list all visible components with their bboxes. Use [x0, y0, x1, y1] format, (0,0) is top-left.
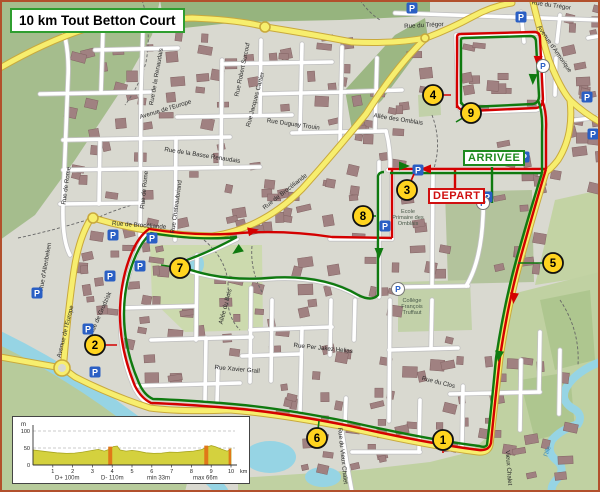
- x-tick-label: 8: [190, 469, 193, 475]
- landuse-area: [150, 245, 263, 332]
- building: [379, 455, 387, 462]
- waypoint-number: 9: [468, 108, 474, 120]
- building: [201, 34, 208, 43]
- roundabout: [88, 213, 98, 223]
- building: [392, 263, 399, 273]
- parking-letter: P: [395, 284, 401, 294]
- building: [200, 117, 214, 130]
- building: [296, 204, 311, 213]
- poi-label: Truffaut: [403, 310, 422, 316]
- building: [145, 373, 159, 384]
- road: [221, 60, 222, 167]
- steep-section: [229, 449, 231, 465]
- building: [436, 422, 443, 429]
- building: [321, 393, 329, 402]
- road: [121, 306, 196, 308]
- elevation-stat: D+ 100m: [55, 476, 80, 482]
- road: [60, 203, 140, 204]
- steep-section: [108, 447, 112, 465]
- x-tick-label: 5: [130, 469, 133, 475]
- building: [473, 43, 486, 49]
- building: [90, 231, 104, 242]
- building: [485, 356, 493, 367]
- road: [196, 255, 197, 340]
- finish-label: ARRIVEE: [463, 150, 525, 166]
- road: [222, 62, 332, 64]
- building: [327, 264, 340, 276]
- building: [388, 107, 397, 114]
- building: [298, 284, 313, 295]
- building: [81, 251, 93, 261]
- street-label: Allée des Omblais: [373, 112, 423, 127]
- building: [410, 246, 425, 253]
- building: [234, 314, 241, 321]
- road: [217, 368, 218, 402]
- parking-letter: P: [85, 325, 91, 335]
- road: [300, 44, 302, 131]
- parking-letter: P: [107, 272, 113, 282]
- building: [328, 83, 337, 91]
- building: [419, 67, 433, 79]
- road: [539, 332, 540, 392]
- building: [166, 51, 179, 62]
- x-tick-label: 4: [111, 469, 114, 475]
- building: [255, 309, 264, 315]
- road: [141, 28, 143, 91]
- building: [144, 355, 155, 363]
- parking-letter: P: [584, 93, 590, 103]
- roundabout-island: [58, 364, 66, 372]
- pond: [244, 441, 296, 473]
- building: [595, 151, 600, 162]
- x-tick-label: 6: [150, 469, 153, 475]
- parking-letter: P: [382, 222, 388, 232]
- parking-letter: P: [149, 234, 155, 244]
- building: [171, 76, 186, 86]
- parking-letter: P: [590, 130, 596, 140]
- waypoint-number: 1: [440, 435, 447, 447]
- building: [198, 45, 213, 55]
- parking-letter: P: [137, 262, 143, 272]
- street-label: Rue Duguay Trouin: [266, 117, 320, 131]
- roundabout: [421, 34, 429, 42]
- main-road: [546, 100, 571, 172]
- building: [569, 23, 576, 32]
- building: [554, 472, 566, 481]
- building: [298, 307, 310, 318]
- street-label: Rue du Trégor: [404, 21, 444, 30]
- building: [264, 179, 275, 189]
- parking-letter: P: [409, 4, 415, 14]
- building: [592, 5, 600, 14]
- building: [355, 134, 363, 141]
- x-tick-label: 7: [170, 469, 173, 475]
- building: [115, 118, 126, 129]
- road: [292, 131, 386, 133]
- street-label: Rue d'Altenbeken: [38, 242, 53, 292]
- building: [572, 146, 587, 157]
- road: [588, 36, 600, 38]
- road: [260, 92, 346, 94]
- building: [155, 246, 163, 253]
- building: [322, 214, 334, 226]
- building: [315, 96, 329, 107]
- building: [153, 266, 160, 276]
- building: [507, 359, 520, 370]
- street-label: Rue de la Renaudais: [148, 48, 165, 106]
- building: [576, 77, 590, 86]
- road: [559, 350, 560, 414]
- x-unit-label: km: [240, 469, 247, 475]
- building: [443, 402, 457, 414]
- building: [352, 95, 363, 107]
- waypoint-number: 5: [550, 258, 557, 270]
- building: [127, 71, 138, 82]
- building: [393, 129, 404, 136]
- x-tick-label: 9: [210, 469, 213, 475]
- building: [139, 316, 149, 323]
- waypoint-number: 6: [314, 433, 320, 445]
- x-tick-label: 1: [51, 469, 54, 475]
- road: [101, 30, 103, 92]
- elevation-chart-canvas: 12345678910km050100mD+ 100mD- 110mmin 33…: [13, 417, 247, 481]
- building: [279, 53, 289, 60]
- course-map[interactable]: Rue du TrégorRue du TrégorAvenue d'Armor…: [0, 0, 600, 492]
- map-title: 10 km Tout Betton Court: [10, 8, 185, 33]
- building: [312, 371, 320, 379]
- waypoint-number: 3: [404, 185, 410, 197]
- y-tick-label: 0: [27, 463, 30, 469]
- building: [522, 174, 534, 181]
- building: [463, 85, 475, 96]
- parking-letter: P: [34, 289, 40, 299]
- y-tick-label: 100: [21, 429, 30, 435]
- building: [86, 296, 94, 302]
- parking-letter: P: [110, 231, 116, 241]
- route-direction-arrow: [528, 74, 537, 85]
- building: [280, 104, 289, 111]
- building: [350, 186, 360, 196]
- building: [297, 256, 313, 268]
- building: [533, 232, 547, 244]
- street-label: Rue du Clos: [421, 375, 456, 390]
- building: [196, 73, 209, 81]
- building: [456, 356, 463, 364]
- waypoint-number: 7: [177, 263, 183, 275]
- elevation-stat: D- 110m: [101, 476, 124, 482]
- building: [576, 133, 588, 144]
- building: [487, 80, 499, 91]
- road: [242, 354, 300, 356]
- road: [99, 140, 100, 204]
- building: [317, 43, 332, 51]
- building: [137, 327, 146, 334]
- building: [225, 184, 233, 193]
- road: [389, 348, 458, 350]
- building: [574, 62, 586, 70]
- waypoint-number: 4: [430, 90, 437, 102]
- road: [402, 286, 468, 287]
- building: [166, 92, 176, 102]
- building: [532, 263, 540, 274]
- building: [281, 384, 288, 391]
- building: [375, 388, 383, 397]
- road: [431, 300, 432, 348]
- x-tick-label: 10: [228, 469, 234, 475]
- road: [95, 48, 178, 50]
- road: [340, 47, 342, 141]
- route-red-line: [457, 32, 543, 111]
- road: [205, 338, 206, 400]
- road: [354, 300, 355, 340]
- building: [334, 401, 343, 411]
- building: [524, 434, 538, 445]
- building: [307, 71, 315, 82]
- road: [271, 300, 272, 381]
- building: [396, 106, 403, 114]
- y-unit-label: m: [21, 422, 26, 428]
- road: [40, 92, 150, 94]
- building: [128, 281, 140, 289]
- building: [558, 456, 573, 464]
- building: [520, 205, 528, 212]
- building: [105, 192, 118, 200]
- street-label: Rue Xavier Grall: [214, 364, 260, 375]
- building: [175, 32, 183, 42]
- roundabout: [260, 22, 270, 32]
- poi-label: Omblais: [398, 221, 419, 227]
- building: [461, 72, 473, 83]
- footpath: [432, 115, 438, 168]
- road: [300, 328, 302, 412]
- building: [561, 45, 575, 57]
- road: [389, 300, 390, 421]
- parking-letter: P: [415, 166, 421, 176]
- building: [368, 444, 376, 450]
- start-label: DEPART: [428, 188, 485, 204]
- parking-letter: P: [540, 61, 546, 71]
- building: [402, 366, 417, 377]
- building: [347, 164, 360, 176]
- building: [378, 419, 386, 425]
- waypoint-number: 2: [92, 340, 98, 352]
- building: [349, 195, 358, 201]
- waypoint-number: 8: [360, 211, 367, 223]
- road: [340, 90, 402, 92]
- building: [94, 277, 103, 286]
- building: [229, 348, 240, 356]
- building: [141, 295, 152, 305]
- building: [498, 73, 508, 80]
- parking-letter: P: [92, 368, 98, 378]
- road: [520, 360, 521, 430]
- building: [370, 400, 384, 408]
- steep-section: [204, 446, 208, 465]
- y-tick-label: 50: [24, 446, 30, 452]
- building: [190, 172, 199, 178]
- elevation-profile: 12345678910km050100mD+ 100mD- 110mmin 33…: [12, 416, 250, 484]
- building: [445, 337, 454, 345]
- building: [497, 140, 510, 148]
- building: [350, 462, 360, 470]
- building: [82, 284, 92, 296]
- building: [301, 464, 309, 471]
- parking-letter: P: [518, 13, 524, 23]
- building: [308, 299, 317, 307]
- building: [196, 87, 205, 93]
- building: [363, 134, 373, 144]
- road: [177, 115, 292, 117]
- building: [323, 451, 334, 458]
- building: [80, 265, 88, 274]
- building: [325, 179, 335, 189]
- x-tick-label: 3: [91, 469, 94, 475]
- street-label: Rue Robert Surcouf: [233, 42, 251, 97]
- elevation-stat: max 66m: [193, 476, 218, 482]
- elevation-stat: min 33m: [147, 476, 170, 482]
- building: [111, 251, 119, 257]
- x-tick-label: 2: [71, 469, 74, 475]
